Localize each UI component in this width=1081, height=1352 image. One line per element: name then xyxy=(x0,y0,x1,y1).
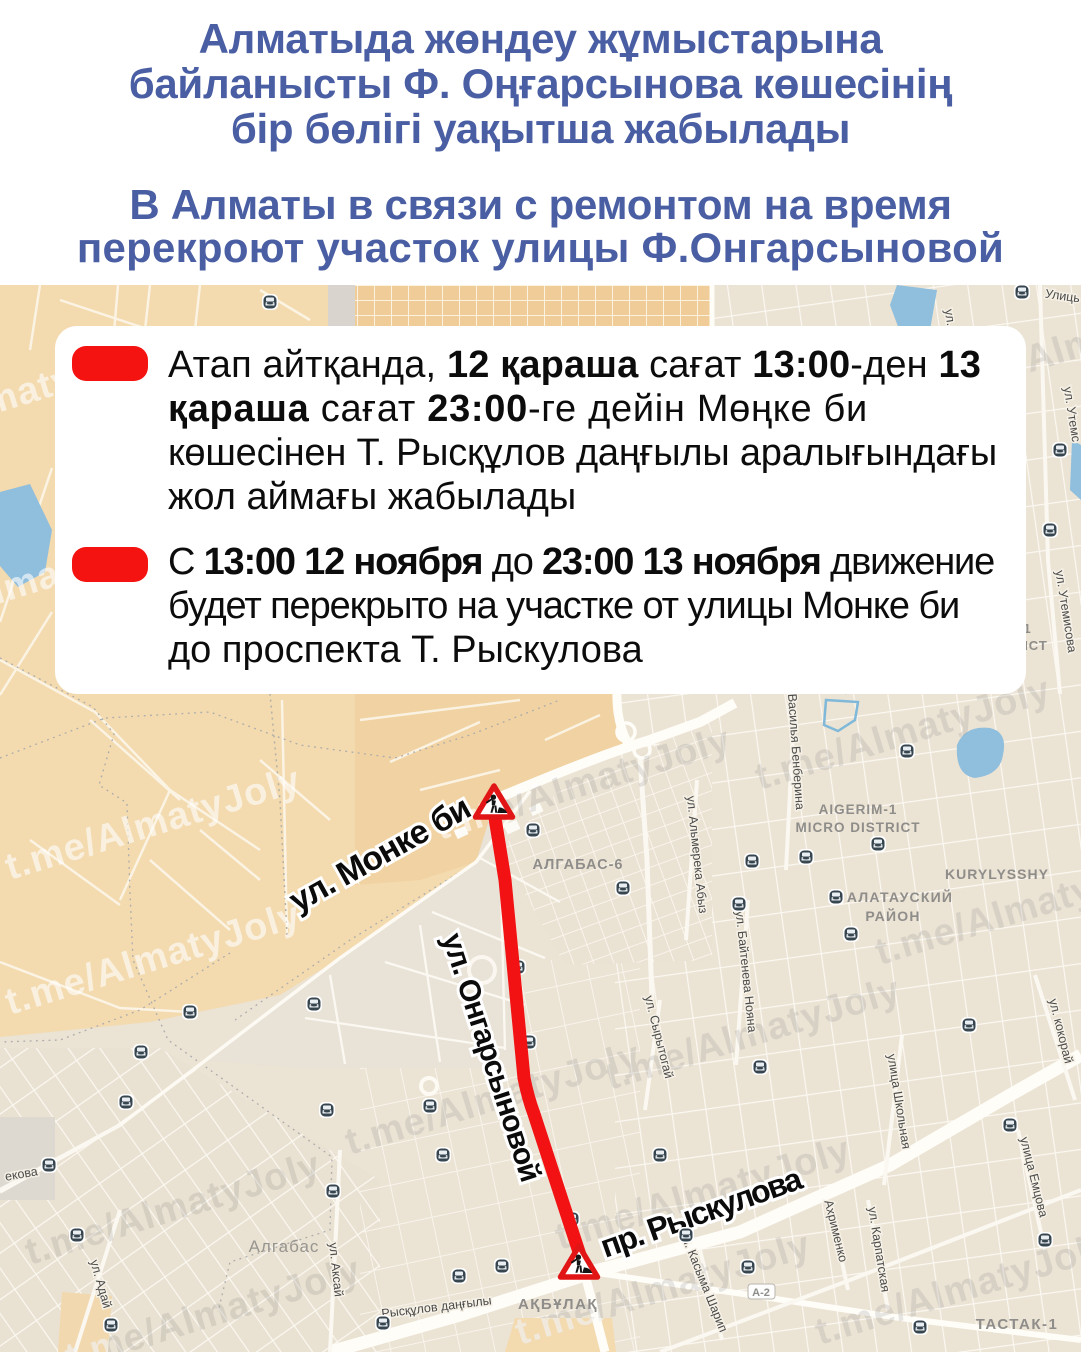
svg-text:MICRO DISTRICT: MICRO DISTRICT xyxy=(796,820,921,835)
svg-text:KURYLYSSHY: KURYLYSSHY xyxy=(945,866,1049,882)
svg-text:АЛАТАУСКИЙ: АЛАТАУСКИЙ xyxy=(847,888,953,905)
svg-text:Алгабас: Алгабас xyxy=(249,1237,320,1256)
svg-text:AIGERIM-1: AIGERIM-1 xyxy=(819,802,898,817)
svg-text:АЛГАБАС-6: АЛГАБАС-6 xyxy=(533,857,624,873)
svg-text:ТАСТАК-1: ТАСТАК-1 xyxy=(976,1316,1059,1333)
svg-text:ул.: ул. xyxy=(942,308,958,327)
svg-text:ІСТ: ІСТ xyxy=(1024,638,1048,653)
svg-text:АҚБҰЛАҚ: АҚБҰЛАҚ xyxy=(518,1296,598,1313)
svg-text:А-2: А-2 xyxy=(752,1287,770,1299)
svg-text:РАЙОН: РАЙОН xyxy=(865,907,920,924)
